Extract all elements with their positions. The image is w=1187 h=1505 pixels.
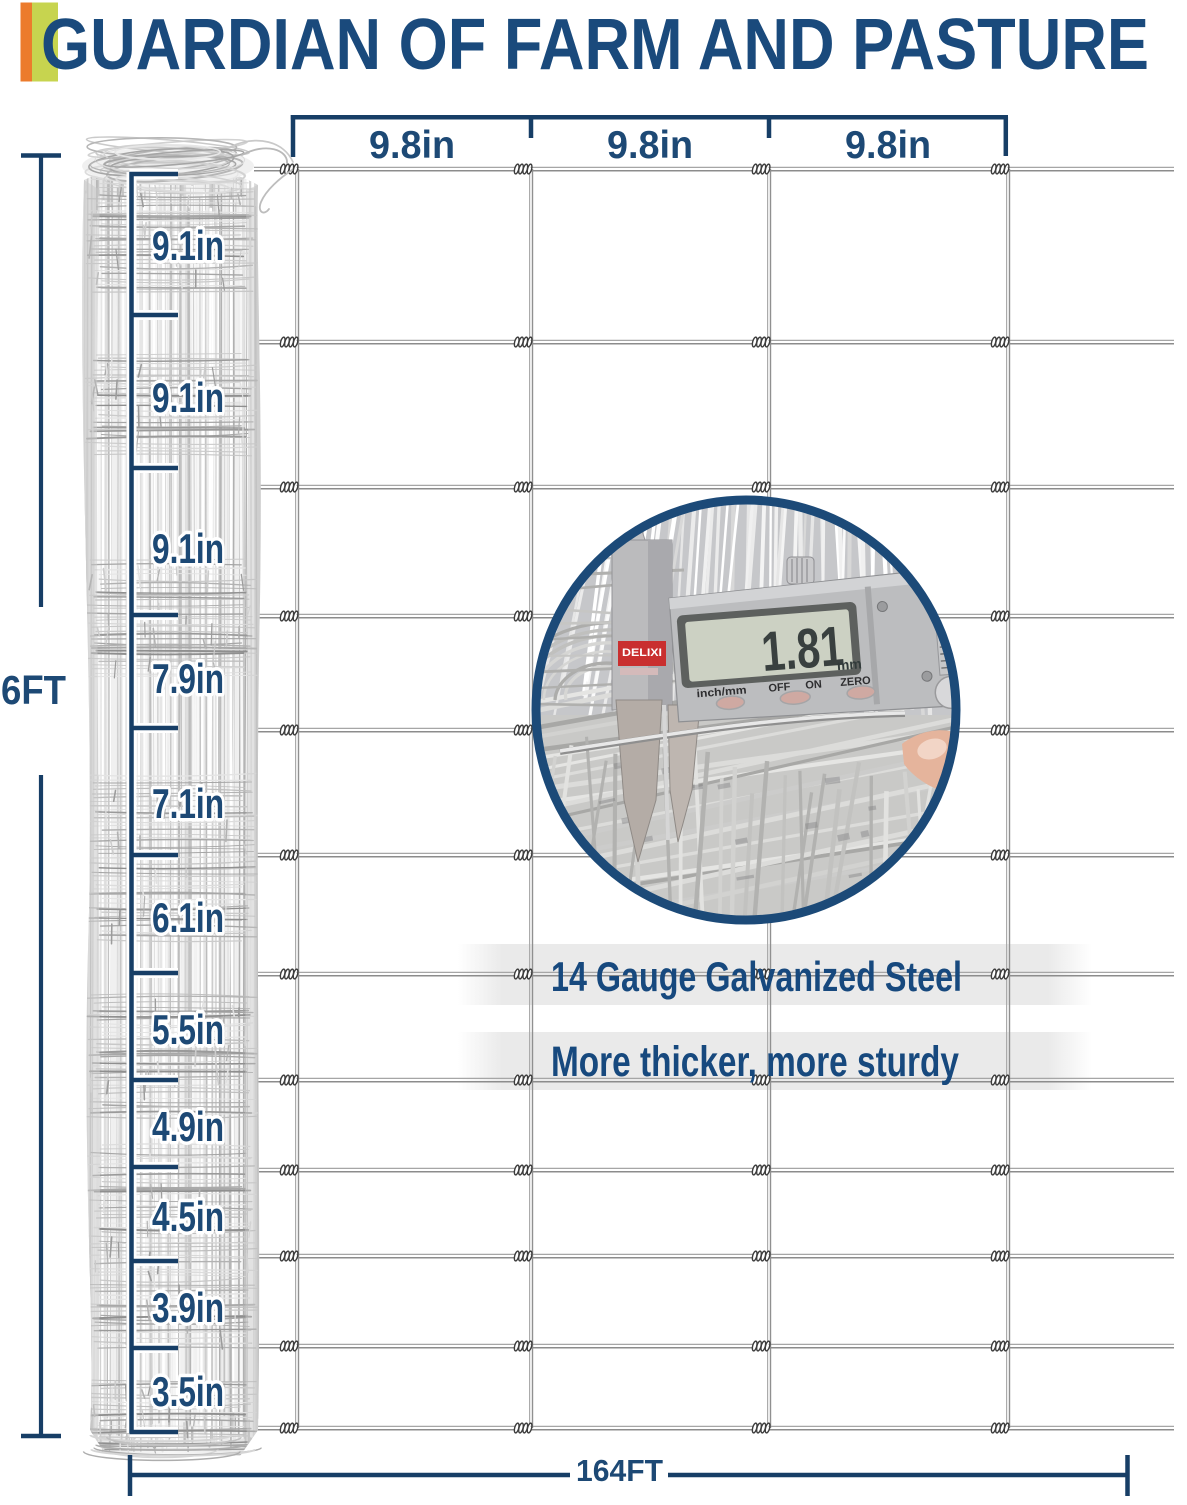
svg-text:9.8in: 9.8in [369, 124, 455, 167]
svg-text:9.8in: 9.8in [607, 124, 693, 167]
svg-text:4.9in: 4.9in [152, 1103, 224, 1150]
svg-text:14 Gauge Galvanized Steel: 14 Gauge Galvanized Steel [551, 953, 962, 1000]
svg-text:7.1in: 7.1in [152, 780, 224, 827]
svg-text:GUARDIAN OF FARM AND PASTURE: GUARDIAN OF FARM AND PASTURE [41, 5, 1149, 85]
svg-text:1.81: 1.81 [759, 614, 846, 683]
svg-text:9.1in: 9.1in [152, 374, 224, 421]
svg-text:ON: ON [805, 679, 822, 692]
svg-text:7.9in: 7.9in [152, 655, 224, 702]
svg-text:9.8in: 9.8in [845, 124, 931, 167]
svg-text:164FT: 164FT [576, 1453, 663, 1488]
svg-text:DELIXI: DELIXI [622, 647, 662, 659]
svg-text:6.1in: 6.1in [152, 894, 224, 941]
svg-text:mm: mm [836, 655, 862, 673]
svg-text:4.5in: 4.5in [152, 1193, 224, 1240]
svg-text:9.1in: 9.1in [152, 222, 224, 269]
svg-text:3.5in: 3.5in [152, 1368, 224, 1415]
svg-text:3.9in: 3.9in [152, 1284, 224, 1331]
svg-text:More thicker, more sturdy: More thicker, more sturdy [551, 1038, 959, 1086]
svg-text:5.5in: 5.5in [152, 1006, 224, 1053]
svg-text:9.1in: 9.1in [152, 525, 224, 572]
svg-text:6FT: 6FT [1, 667, 66, 713]
